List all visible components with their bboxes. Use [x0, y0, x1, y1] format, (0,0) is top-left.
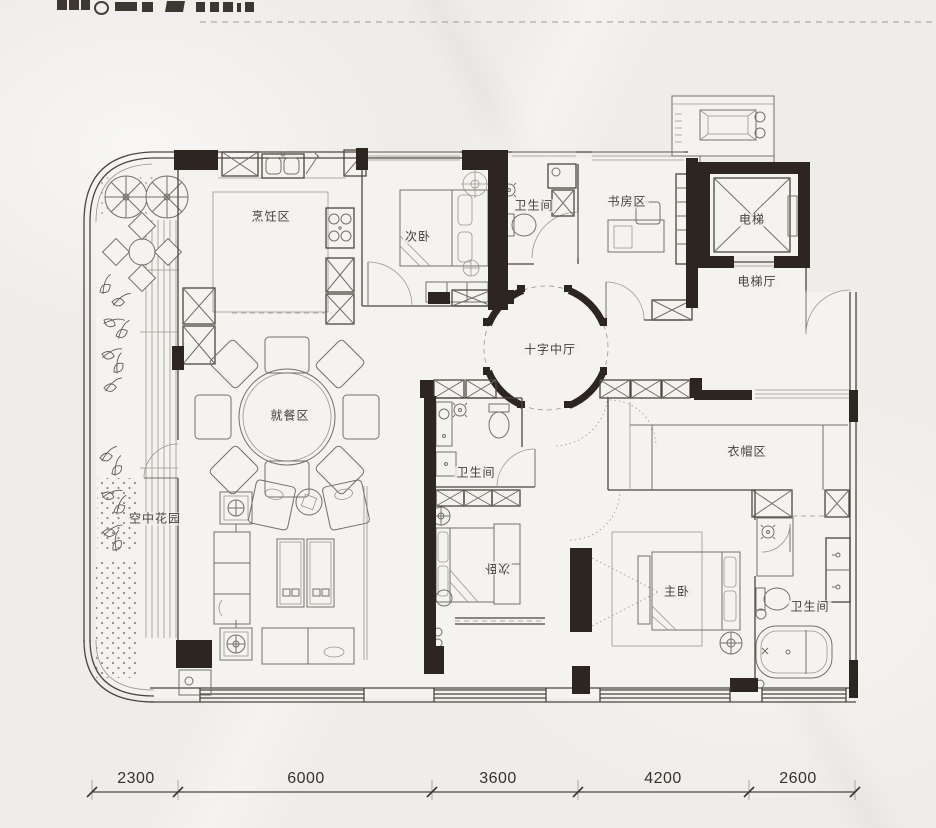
machine-room-floor — [672, 96, 774, 158]
stool-lamp-icon — [720, 632, 742, 654]
room-label-bedroom-bottom: 次卧 — [482, 561, 512, 574]
room-label-bath-top: 卫生间 — [512, 199, 555, 212]
room-label-kitchen: 烹饪区 — [249, 210, 292, 223]
dimension-line — [87, 780, 860, 800]
room-label-elevator: 电梯 — [737, 213, 767, 226]
dimension-value: 4200 — [644, 770, 682, 788]
floorplan-page: 烹饪区 次卧 卫生间 书房区 电梯 电梯厅 十字中厅 就餐区 空中花园 卫生间 … — [0, 0, 936, 828]
dimension-value: 3600 — [479, 770, 517, 788]
dimension-value: 6000 — [287, 770, 325, 788]
room-label-bedroom-top: 次卧 — [403, 230, 433, 243]
room-label-elevator-hall: 电梯厅 — [735, 275, 778, 288]
dimension-value: 2600 — [779, 770, 817, 788]
room-label-central-hall: 十字中厅 — [522, 343, 578, 356]
floorplan-drawing — [0, 0, 936, 828]
room-label-cloakroom: 衣帽区 — [725, 445, 768, 458]
dimension-value: 2300 — [117, 770, 155, 788]
room-label-bath-middle: 卫生间 — [454, 466, 497, 479]
room-label-sky-garden: 空中花园 — [127, 512, 183, 525]
tree-icon — [105, 176, 147, 218]
room-label-dining: 就餐区 — [268, 409, 311, 422]
room-label-master-bath: 卫生间 — [788, 600, 831, 613]
room-label-master-bedroom: 主卧 — [662, 585, 692, 598]
room-label-study: 书房区 — [605, 195, 648, 208]
tree-icon — [146, 176, 188, 218]
